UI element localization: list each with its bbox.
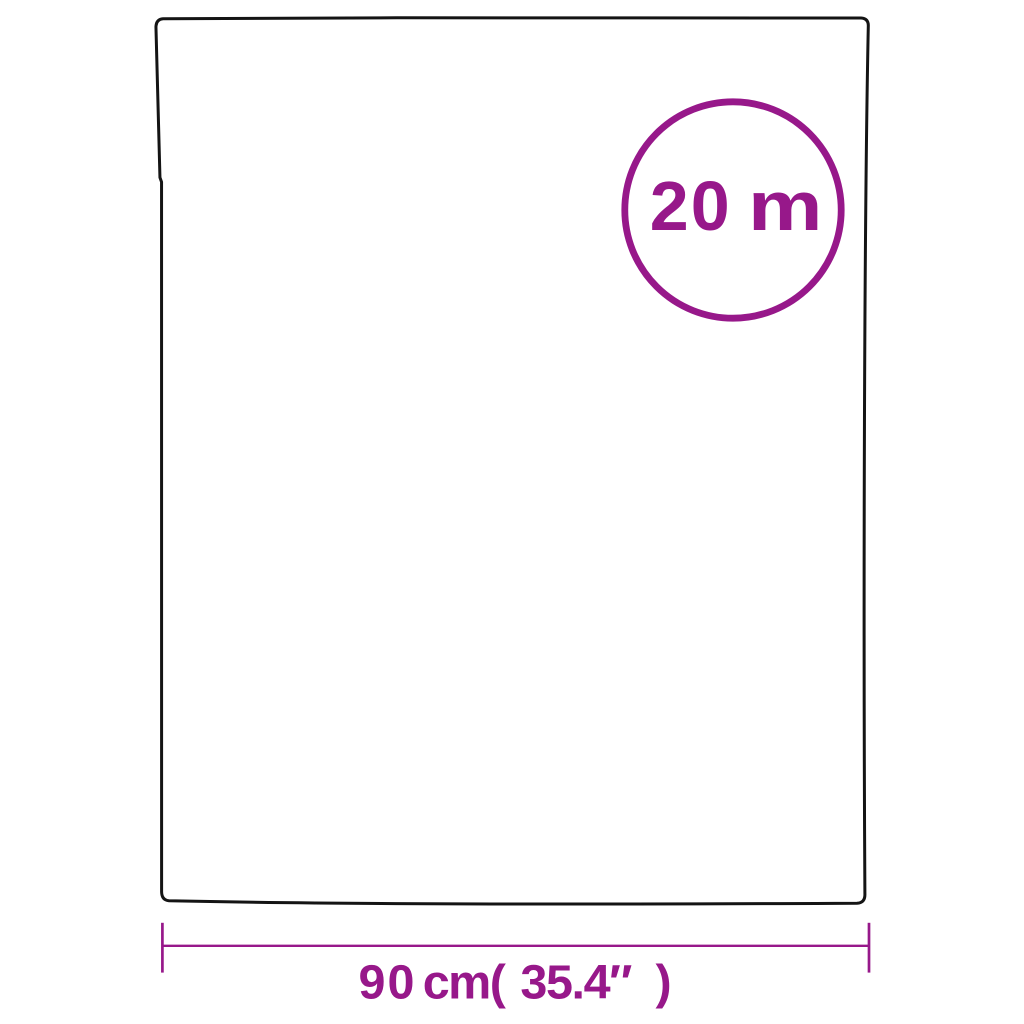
svg-text:35.4″: 35.4″: [520, 956, 632, 1010]
svg-text:cm(: cm(: [423, 956, 507, 1010]
svg-text:): ): [656, 956, 672, 1010]
svg-text:20: 20: [650, 167, 732, 245]
svg-text:90: 90: [359, 956, 417, 1010]
svg-text:m: m: [748, 167, 823, 245]
